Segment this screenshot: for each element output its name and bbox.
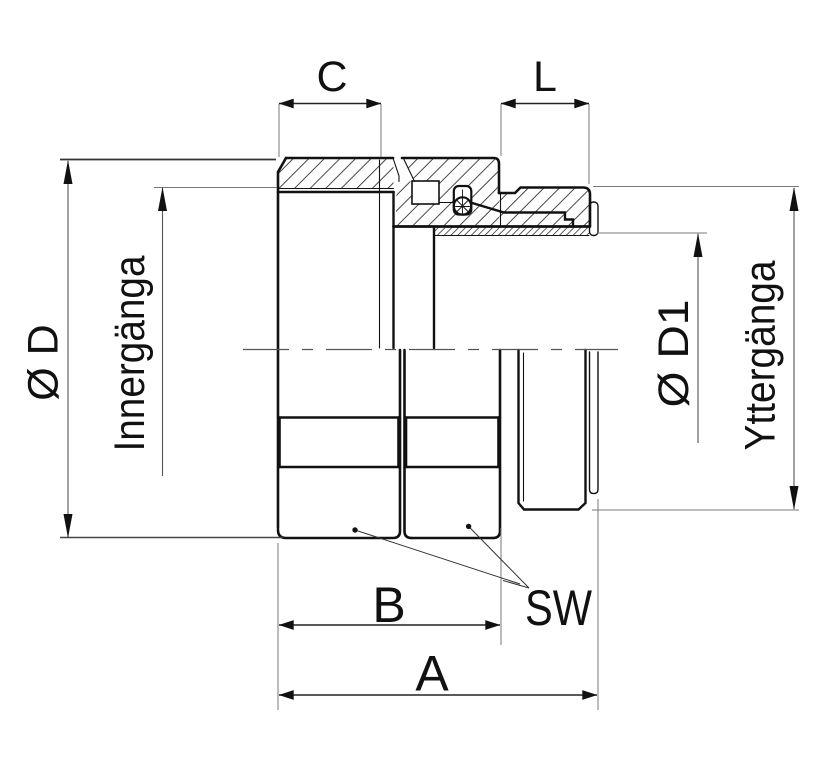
svg-text:Innergänga: Innergänga	[106, 255, 154, 451]
svg-text:A: A	[415, 646, 449, 702]
svg-text:B: B	[372, 577, 405, 633]
svg-text:L: L	[533, 53, 557, 101]
svg-text:Ø D1: Ø D1	[650, 300, 698, 408]
svg-text:C: C	[316, 53, 347, 101]
svg-text:Yttergänga: Yttergänga	[737, 260, 785, 450]
svg-text:SW: SW	[525, 580, 593, 636]
svg-text:Ø D: Ø D	[20, 324, 68, 400]
